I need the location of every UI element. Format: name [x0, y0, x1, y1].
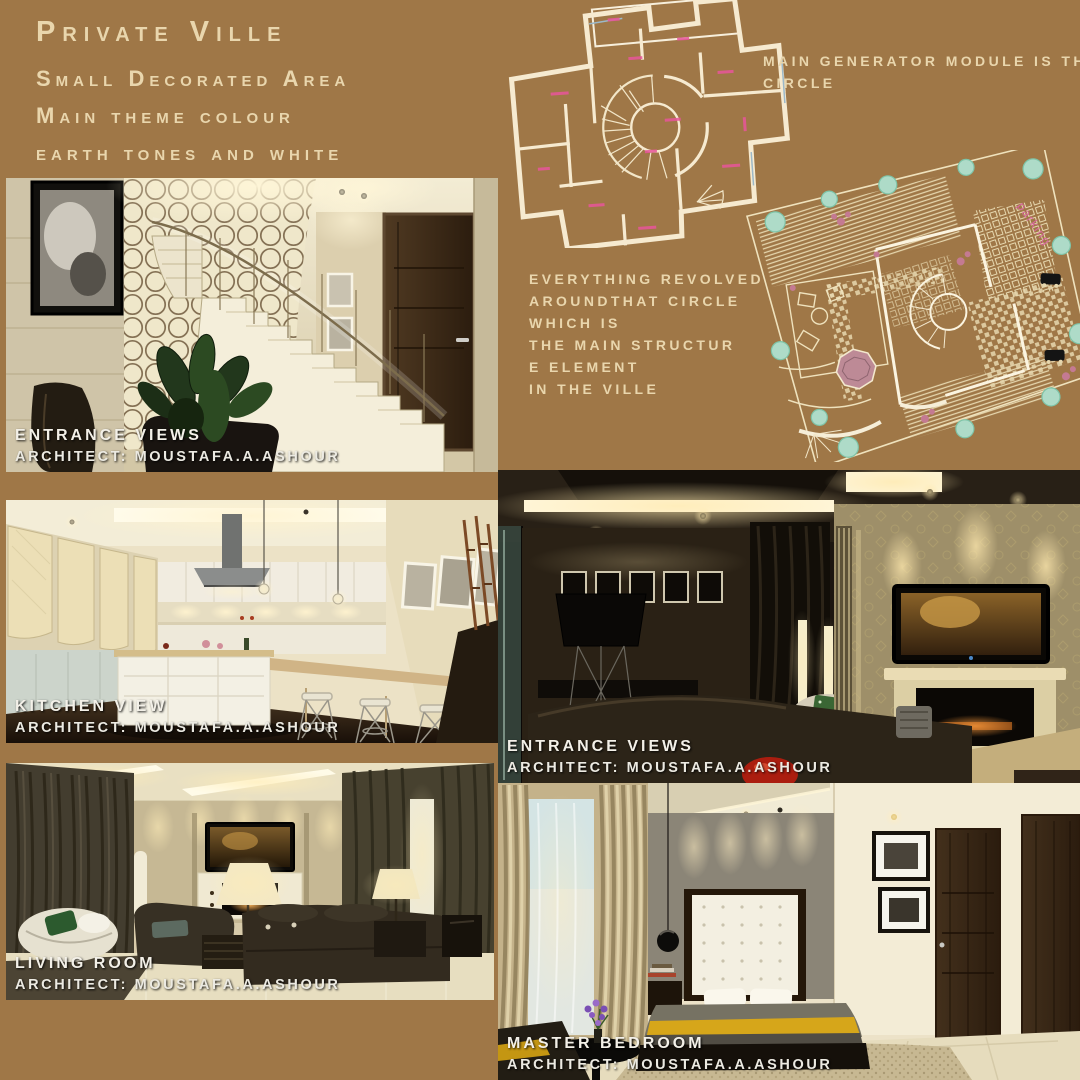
plan-stair-treads: [600, 75, 667, 182]
pattern-pillow: [896, 706, 932, 738]
curtains-left: [498, 783, 648, 1051]
wall-tv: [894, 586, 1048, 662]
site-plan-note-line: AROUNDTHAT CIRCLE: [529, 290, 764, 312]
render-living-room: LIVING ROOM ARCHITECT: MOUSTAFA.A.ASHOUR: [6, 763, 494, 1000]
title-block: Private Ville Small Decorated Area Main …: [36, 16, 350, 166]
site-plan-note-line: THE MAIN STRUCTUR: [529, 334, 764, 356]
wall-artwork: [32, 182, 122, 314]
site-plan-note-line: EVERYTHING REVOLVED: [529, 268, 764, 290]
site-plan-note-line: E ELEMENT: [529, 356, 764, 378]
plan-central-circle: [600, 72, 711, 182]
poster-canvas: Private Ville Small Decorated Area Main …: [0, 0, 1080, 1080]
pod-chair: [18, 908, 118, 962]
poster-title: Private Ville: [36, 16, 350, 49]
floor-plan-note-line: MAIN GENERATOR MODULE IS THE: [763, 50, 1080, 72]
poster-subtitle-1: Small Decorated Area: [36, 66, 350, 92]
caption-credit: ARCHITECT: MOUSTAFA.A.ASHOUR: [15, 720, 340, 736]
floor-plan-note: MAIN GENERATOR MODULE IS THE CIRCLE: [763, 50, 1080, 94]
floor-plan-note-line: CIRCLE: [763, 72, 1080, 94]
caption-title: LIVING ROOM: [15, 955, 340, 973]
caption-credit: ARCHITECT: MOUSTAFA.A.ASHOUR: [507, 1057, 832, 1073]
door-handle: [456, 338, 469, 342]
caption: MASTER BEDROOM ARCHITECT: MOUSTAFA.A.ASH…: [507, 1035, 832, 1073]
caption-title: ENTRANCE VIEWS: [507, 738, 832, 756]
caption-credit: ARCHITECT: MOUSTAFA.A.ASHOUR: [507, 760, 832, 776]
poster-subtitle-3: earth tones and white: [36, 140, 350, 166]
render-tv-lounge: ENTRANCE VIEWS ARCHITECT: MOUSTAFA.A.ASH…: [498, 470, 1080, 783]
site-plan-drawing: parking: [735, 150, 1080, 462]
door-handle: [940, 943, 945, 948]
caption: LIVING ROOM ARCHITECT: MOUSTAFA.A.ASHOUR: [15, 955, 340, 993]
site-plan-note: EVERYTHING REVOLVED AROUNDTHAT CIRCLE WH…: [529, 268, 764, 400]
site-plan-note-line: WHICH IS: [529, 312, 764, 334]
caption: ENTRANCE VIEWS ARCHITECT: MOUSTAFA.A.ASH…: [15, 427, 340, 465]
upper-cabinets: [158, 562, 386, 602]
caption-credit: ARCHITECT: MOUSTAFA.A.ASHOUR: [15, 977, 340, 993]
caption-title: ENTRANCE VIEWS: [15, 427, 340, 445]
render-entrance-staircase: ENTRANCE VIEWS ARCHITECT: MOUSTAFA.A.ASH…: [6, 178, 498, 472]
caption: ENTRANCE VIEWS ARCHITECT: MOUSTAFA.A.ASH…: [507, 738, 832, 776]
render-kitchen: KITCHEN VIEW ARCHITECT: MOUSTAFA.A.ASHOU…: [6, 500, 498, 743]
caption-title: MASTER BEDROOM: [507, 1035, 832, 1053]
mirror-strips: [836, 526, 861, 742]
site-plan-note-line: IN THE VILLE: [529, 378, 764, 400]
caption-credit: ARCHITECT: MOUSTAFA.A.ASHOUR: [15, 449, 340, 465]
caption: KITCHEN VIEW ARCHITECT: MOUSTAFA.A.ASHOU…: [15, 698, 340, 736]
render-master-bedroom: MASTER BEDROOM ARCHITECT: MOUSTAFA.A.ASH…: [498, 783, 1080, 1080]
plan-terrace-outline: [592, 0, 739, 46]
poster-subtitle-2: Main theme colour: [36, 103, 350, 129]
caption-title: KITCHEN VIEW: [15, 698, 340, 716]
tufted-headboard: [684, 889, 806, 1001]
base-cabinets: [158, 625, 386, 654]
